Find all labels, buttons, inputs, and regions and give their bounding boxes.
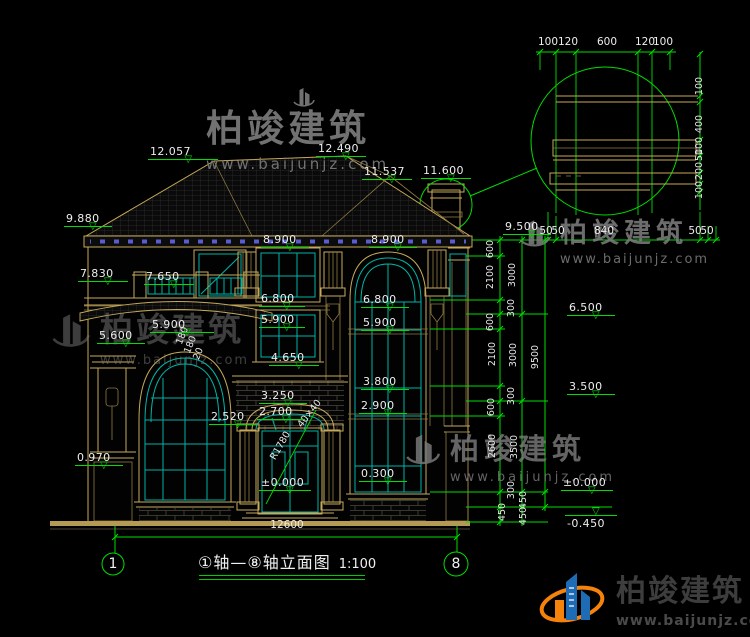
dim-label: 9500 <box>531 345 541 369</box>
title-underline <box>199 575 365 576</box>
elevation-marker: 5.900▽ <box>150 319 214 333</box>
elevation-marker: 3.800▽ <box>361 376 409 390</box>
axis-number: 8 <box>452 556 461 572</box>
dim-label: 100 <box>695 181 705 199</box>
title-underline <box>199 579 365 580</box>
logo-url: www.baijunjz.com <box>616 613 750 629</box>
elevation-marker: 4.650▽ <box>269 352 319 366</box>
elevation-marker: 0.970▽ <box>75 452 123 466</box>
watermark-mid-left: 柏竣建筑 www.baijunjz.com <box>50 303 249 368</box>
elevation-marker: 12.490▽ <box>316 143 366 157</box>
brand-building-icon <box>292 85 316 109</box>
dim-label: 2600 <box>488 434 498 458</box>
watermark-brand: 柏竣建筑 <box>450 426 615 468</box>
brand-building-icon <box>50 303 92 357</box>
elevation-marker: 9.500▽ <box>503 221 551 235</box>
elevation-marker: 3.250▽ <box>259 390 307 404</box>
elevation-marker: 5.900▽ <box>259 314 305 328</box>
elevation-marker: 5.900▽ <box>361 317 409 331</box>
elevation-marker: 11.600▽ <box>421 165 471 179</box>
dim-label: 100 <box>653 37 673 48</box>
elevation-marker: 8.900▽ <box>261 234 309 248</box>
dim-label: 600 <box>597 37 617 48</box>
drawing-scale: 1:100 <box>339 557 376 572</box>
dim-label: 400 <box>695 115 705 133</box>
dim-label: 600 <box>486 313 496 331</box>
elevation-marker: 2.900▽ <box>359 400 407 414</box>
dim-label: 50 <box>695 149 705 161</box>
brand-logo-bottom-right: 柏竣建筑 www.baijunjz.com <box>536 566 750 630</box>
watermark-top: 柏竣建筑 www.baijunjz.com <box>206 98 389 173</box>
dim-label: 2100 <box>486 265 496 289</box>
elevation-marker: 9.880▽ <box>64 213 112 227</box>
elevation-marker: 11.537▽ <box>362 166 412 180</box>
dim-label: R1780 <box>269 430 293 462</box>
watermark-brand: 柏竣建筑 <box>560 211 709 250</box>
elevation-marker: ±0.000▽ <box>259 477 311 491</box>
axis-number: 1 <box>109 556 118 572</box>
drawing-title: ①轴—⑧轴立面图1:100 <box>198 549 376 573</box>
dim-label: 3500 <box>510 435 520 459</box>
drawing-title-text: ①轴—⑧轴立面图 <box>198 553 331 572</box>
logo-brand: 柏竣建筑 <box>616 566 750 610</box>
dim-label: 50 <box>700 226 713 237</box>
elevation-marker: 5.600▽ <box>97 330 145 344</box>
dim-label: 120 <box>558 37 578 48</box>
dim-label: 840 <box>594 226 614 237</box>
elevation-marker: 6.800▽ <box>259 293 305 307</box>
dim-label: 600 <box>486 240 496 258</box>
dim-label: 100 <box>695 77 705 95</box>
elevation-marker: 0.300▽ <box>359 468 407 482</box>
elevation-marker: 2.520▽ <box>209 411 257 425</box>
elevation-marker: 6.800▽ <box>361 294 409 308</box>
elevation-marker: 12.057▽ <box>148 146 218 160</box>
dim-label: 3000 <box>509 343 519 367</box>
dim-label: 300 <box>507 299 517 317</box>
watermark-right-upper: 柏竣建筑 www.baijunjz.com <box>518 211 709 267</box>
watermark-url: www.baijunjz.com <box>560 252 709 267</box>
elevation-marker: 7.650▽ <box>144 271 194 285</box>
elevation-marker: -0.450▽ <box>565 515 617 531</box>
elevation-marker: 3.500▽ <box>567 381 615 395</box>
brand-building-icon <box>404 426 442 472</box>
dim-label: 100 <box>538 37 558 48</box>
elevation-marker: 8.900▽ <box>369 234 417 248</box>
dim-label: 300 <box>507 481 517 499</box>
dim-label: 450 <box>498 503 508 521</box>
cad-elevation-screenshot: 12.057▽12.490▽11.537▽11.600▽9.880▽8.900▽… <box>0 0 750 637</box>
watermark-url: www.baijunjz.com <box>100 353 249 368</box>
dim-label: 50 <box>551 226 564 237</box>
elevation-marker: 6.500▽ <box>567 302 615 316</box>
elevation-marker: ±0.000▽ <box>561 477 613 491</box>
brand-logo-icon <box>536 566 608 630</box>
dim-label: 600 <box>487 398 497 416</box>
elevation-marker: 7.830▽ <box>78 268 128 282</box>
dim-label: 12600 <box>270 520 303 531</box>
dim-label: 300 <box>507 387 517 405</box>
dim-label: 2100 <box>488 342 498 366</box>
dim-label: 450 <box>519 507 529 525</box>
elevation-marker: 2.700▽ <box>257 406 305 420</box>
dim-label: 200 <box>695 162 705 180</box>
dim-label: 3000 <box>508 263 518 287</box>
